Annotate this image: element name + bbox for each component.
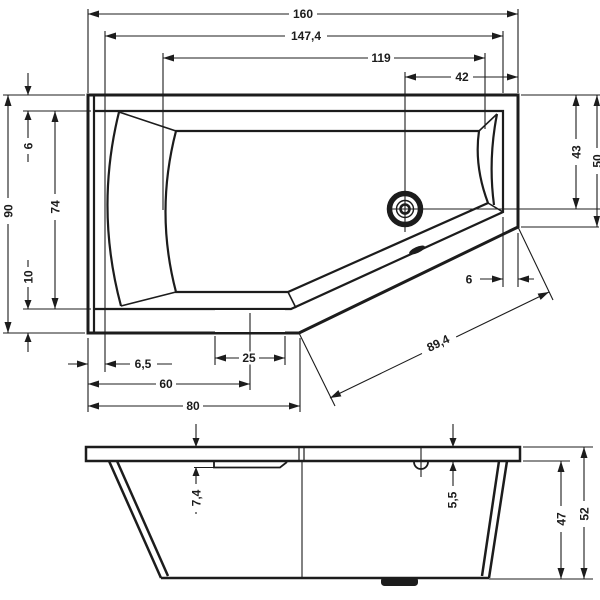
dim-label: 160 <box>293 7 313 21</box>
dim-label: 42 <box>455 70 469 84</box>
dim-rim-thickness: 5,5 <box>445 424 459 514</box>
dim-label: 147,4 <box>291 29 321 43</box>
technical-drawing-page: 160 147,4 119 42 <box>0 0 600 600</box>
front-overflow-recess <box>214 462 287 468</box>
dim-label: 25 <box>242 351 256 365</box>
dim-bottom-edge-length: 80 <box>88 338 300 413</box>
foot-end-curve <box>492 114 497 205</box>
dim-label: 50 <box>590 154 600 168</box>
dim-label: 6,5 <box>135 357 152 371</box>
tub-rim-inner-ring <box>94 111 503 309</box>
overflow-bump-icon <box>408 244 426 257</box>
dim-corner-offset-top: 50 <box>521 95 600 227</box>
dim-label: 6 <box>21 142 35 149</box>
backrest-outer-curve <box>107 112 121 306</box>
dim-label: 52 <box>577 507 591 521</box>
front-view: 7,4 5,5 47 <box>86 424 593 586</box>
dim-rim-bottom-width: 10 <box>21 260 35 352</box>
front-left-slope <box>109 461 168 578</box>
front-drain-boss <box>381 577 418 586</box>
dim-label: 5,5 <box>445 491 459 508</box>
dim-diagonal-edge-length: 89,4 <box>299 227 553 406</box>
dim-label: 6 <box>466 272 473 286</box>
dim-label: 74 <box>48 200 62 214</box>
dim-label: 10 <box>21 270 35 284</box>
wall-seam-lines <box>119 112 503 308</box>
dim-rim-left-width: 6,5 <box>68 338 172 412</box>
front-rim-bar <box>86 447 520 461</box>
top-view: 160 147,4 119 42 <box>1 7 600 413</box>
dim-label: 90 <box>1 204 15 218</box>
basin-opening-outline <box>166 131 489 292</box>
dim-fitting-center-offset: 60 <box>88 377 250 391</box>
dim-label: 43 <box>569 145 583 159</box>
bathtub-drawing: 160 147,4 119 42 <box>0 0 600 600</box>
front-rim-joint-lines <box>299 447 304 461</box>
dim-label: 80 <box>186 399 200 413</box>
dim-label: 7,4 <box>189 489 203 506</box>
dim-recess-depth: 7,4 <box>189 424 214 514</box>
dim-overall-width: 90 <box>1 95 85 333</box>
dim-label: 119 <box>371 51 391 65</box>
dim-label: 47 <box>554 512 568 526</box>
dim-label: 60 <box>159 377 173 391</box>
front-right-slope <box>482 461 507 578</box>
